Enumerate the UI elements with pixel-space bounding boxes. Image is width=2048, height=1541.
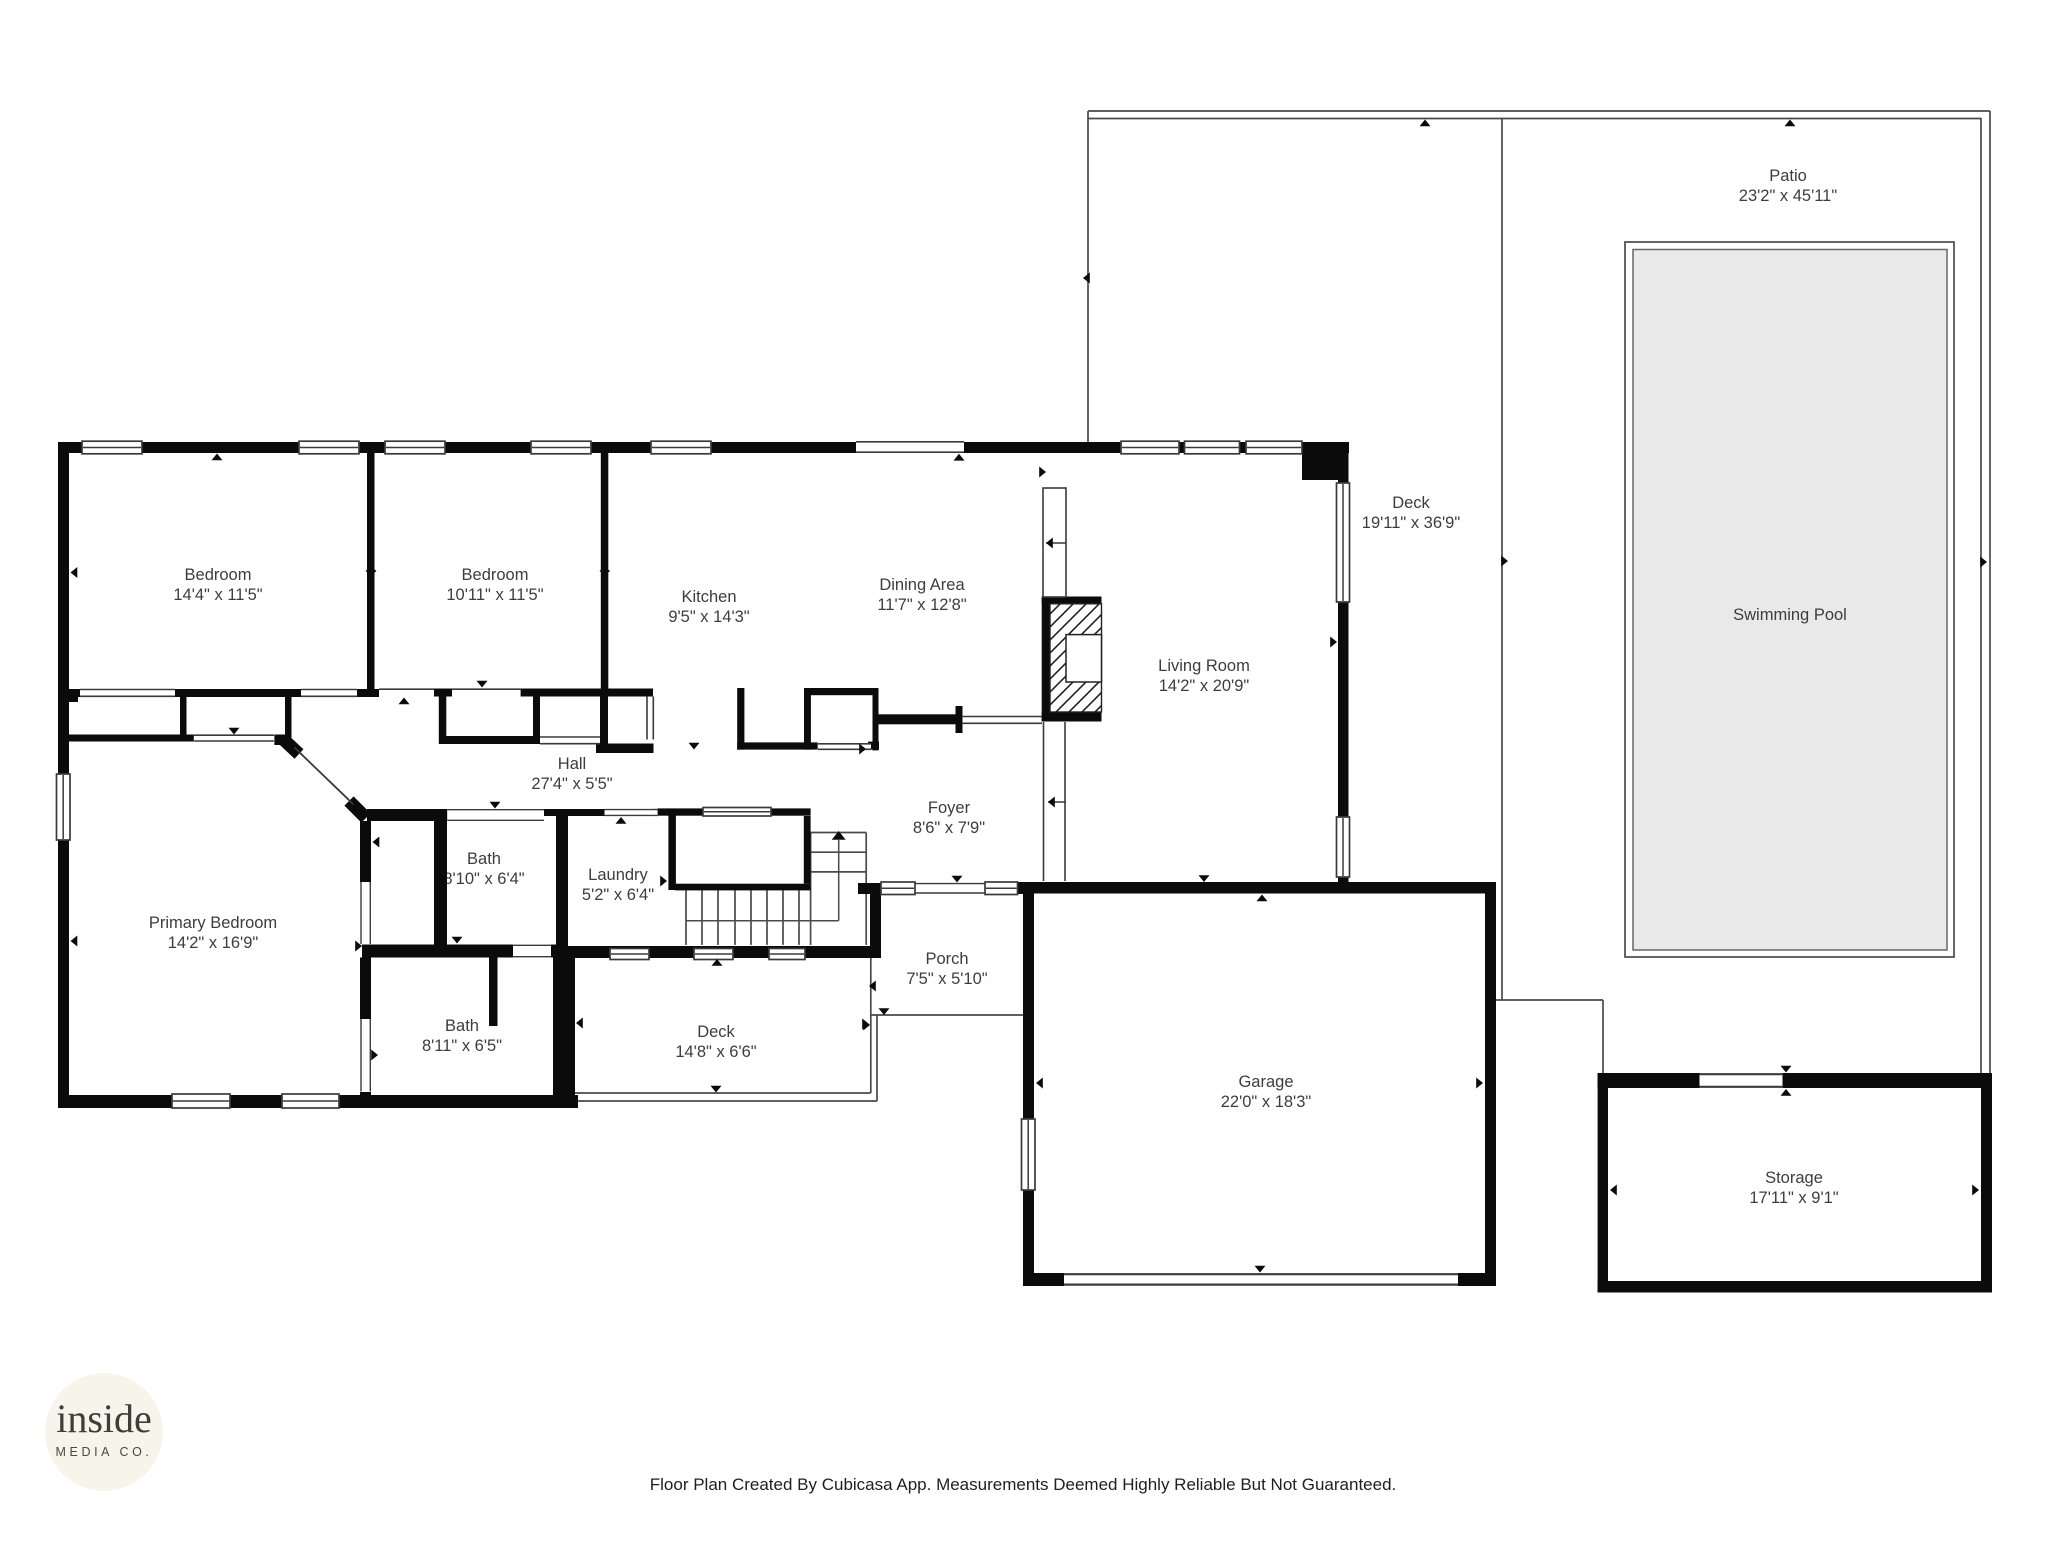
- svg-text:Foyer: Foyer: [928, 799, 971, 817]
- svg-text:8'10" x 6'4": 8'10" x 6'4": [443, 870, 524, 888]
- svg-text:MEDIA CO.: MEDIA CO.: [56, 1445, 153, 1459]
- svg-text:Porch: Porch: [925, 950, 968, 968]
- svg-text:Storage: Storage: [1765, 1169, 1823, 1187]
- svg-text:14'2" x 16'9": 14'2" x 16'9": [168, 934, 259, 952]
- svg-text:Floor Plan Created By Cubicasa: Floor Plan Created By Cubicasa App. Meas…: [650, 1475, 1397, 1494]
- svg-text:19'11" x 36'9": 19'11" x 36'9": [1362, 514, 1461, 532]
- svg-text:23'2" x 45'11": 23'2" x 45'11": [1739, 187, 1838, 205]
- svg-text:Kitchen: Kitchen: [681, 588, 736, 606]
- svg-text:11'7" x 12'8": 11'7" x 12'8": [877, 596, 966, 614]
- svg-text:Deck: Deck: [697, 1023, 735, 1041]
- svg-text:14'8" x 6'6": 14'8" x 6'6": [675, 1043, 756, 1061]
- svg-text:14'4" x 11'5": 14'4" x 11'5": [173, 586, 262, 604]
- svg-text:27'4" x 5'5": 27'4" x 5'5": [531, 775, 612, 793]
- svg-text:Hall: Hall: [558, 755, 586, 773]
- svg-text:inside: inside: [56, 1396, 152, 1441]
- svg-text:Swimming Pool: Swimming Pool: [1733, 606, 1847, 624]
- svg-text:Bath: Bath: [445, 1017, 479, 1035]
- svg-text:5'2" x 6'4": 5'2" x 6'4": [582, 886, 654, 904]
- svg-text:Laundry: Laundry: [588, 866, 648, 884]
- svg-text:Garage: Garage: [1238, 1073, 1293, 1091]
- svg-text:Bedroom: Bedroom: [462, 566, 529, 584]
- svg-text:Living Room: Living Room: [1158, 657, 1250, 675]
- svg-text:8'6" x 7'9": 8'6" x 7'9": [913, 819, 985, 837]
- svg-text:Bath: Bath: [467, 850, 501, 868]
- svg-text:22'0" x 18'3": 22'0" x 18'3": [1221, 1093, 1312, 1111]
- svg-text:10'11" x 11'5": 10'11" x 11'5": [446, 586, 543, 604]
- svg-text:Dining Area: Dining Area: [879, 576, 965, 594]
- svg-text:Patio: Patio: [1769, 167, 1807, 185]
- svg-text:Deck: Deck: [1392, 494, 1430, 512]
- svg-text:7'5" x 5'10": 7'5" x 5'10": [906, 970, 987, 988]
- svg-text:Primary Bedroom: Primary Bedroom: [149, 914, 277, 932]
- svg-text:9'5" x 14'3": 9'5" x 14'3": [668, 608, 749, 626]
- svg-text:Bedroom: Bedroom: [185, 566, 252, 584]
- svg-text:8'11" x 6'5": 8'11" x 6'5": [422, 1037, 502, 1055]
- svg-text:14'2" x 20'9": 14'2" x 20'9": [1159, 677, 1250, 695]
- svg-text:17'11" x 9'1": 17'11" x 9'1": [1749, 1189, 1838, 1207]
